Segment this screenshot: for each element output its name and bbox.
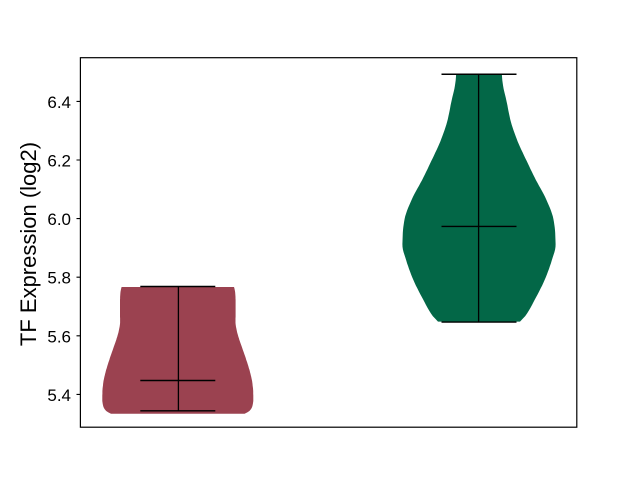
- svg-text:6.4: 6.4: [47, 93, 71, 112]
- svg-text:TF Expression (log2): TF Expression (log2): [16, 142, 41, 346]
- svg-text:5.8: 5.8: [47, 269, 71, 288]
- svg-text:6.0: 6.0: [47, 210, 71, 229]
- svg-text:6.2: 6.2: [47, 152, 71, 171]
- svg-text:5.4: 5.4: [47, 386, 71, 405]
- svg-text:5.6: 5.6: [47, 327, 71, 346]
